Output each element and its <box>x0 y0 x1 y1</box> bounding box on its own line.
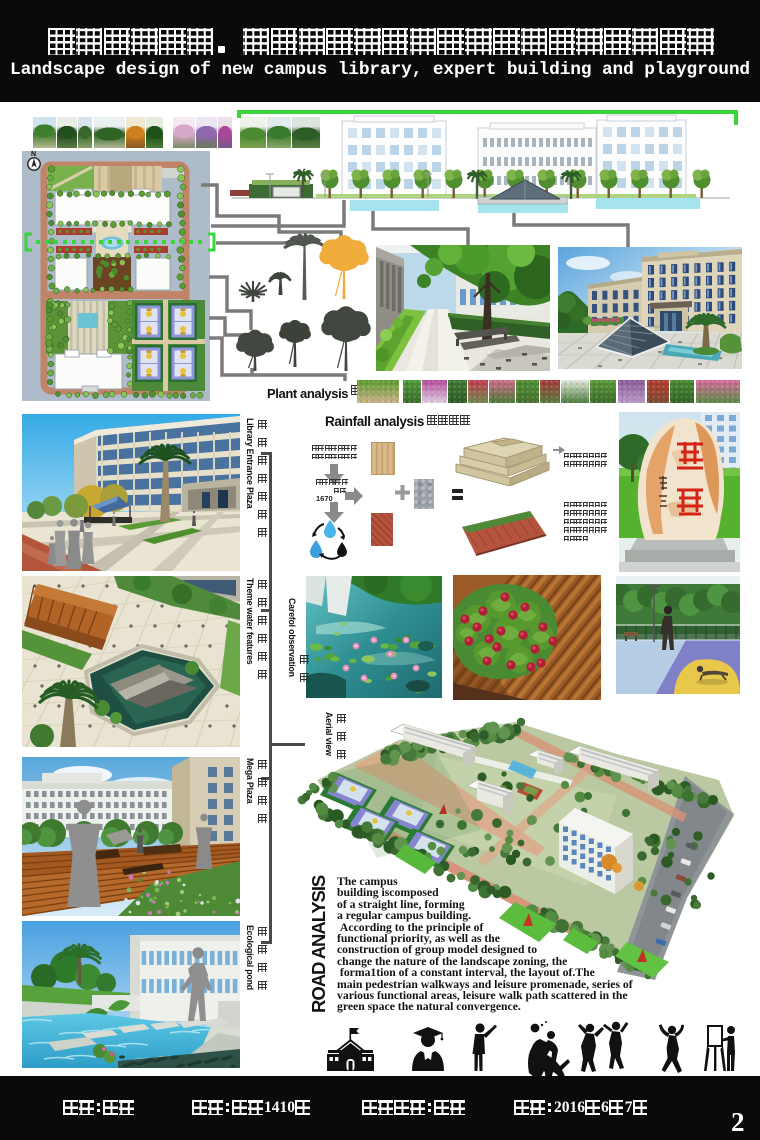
svg-text:N: N <box>31 151 36 158</box>
